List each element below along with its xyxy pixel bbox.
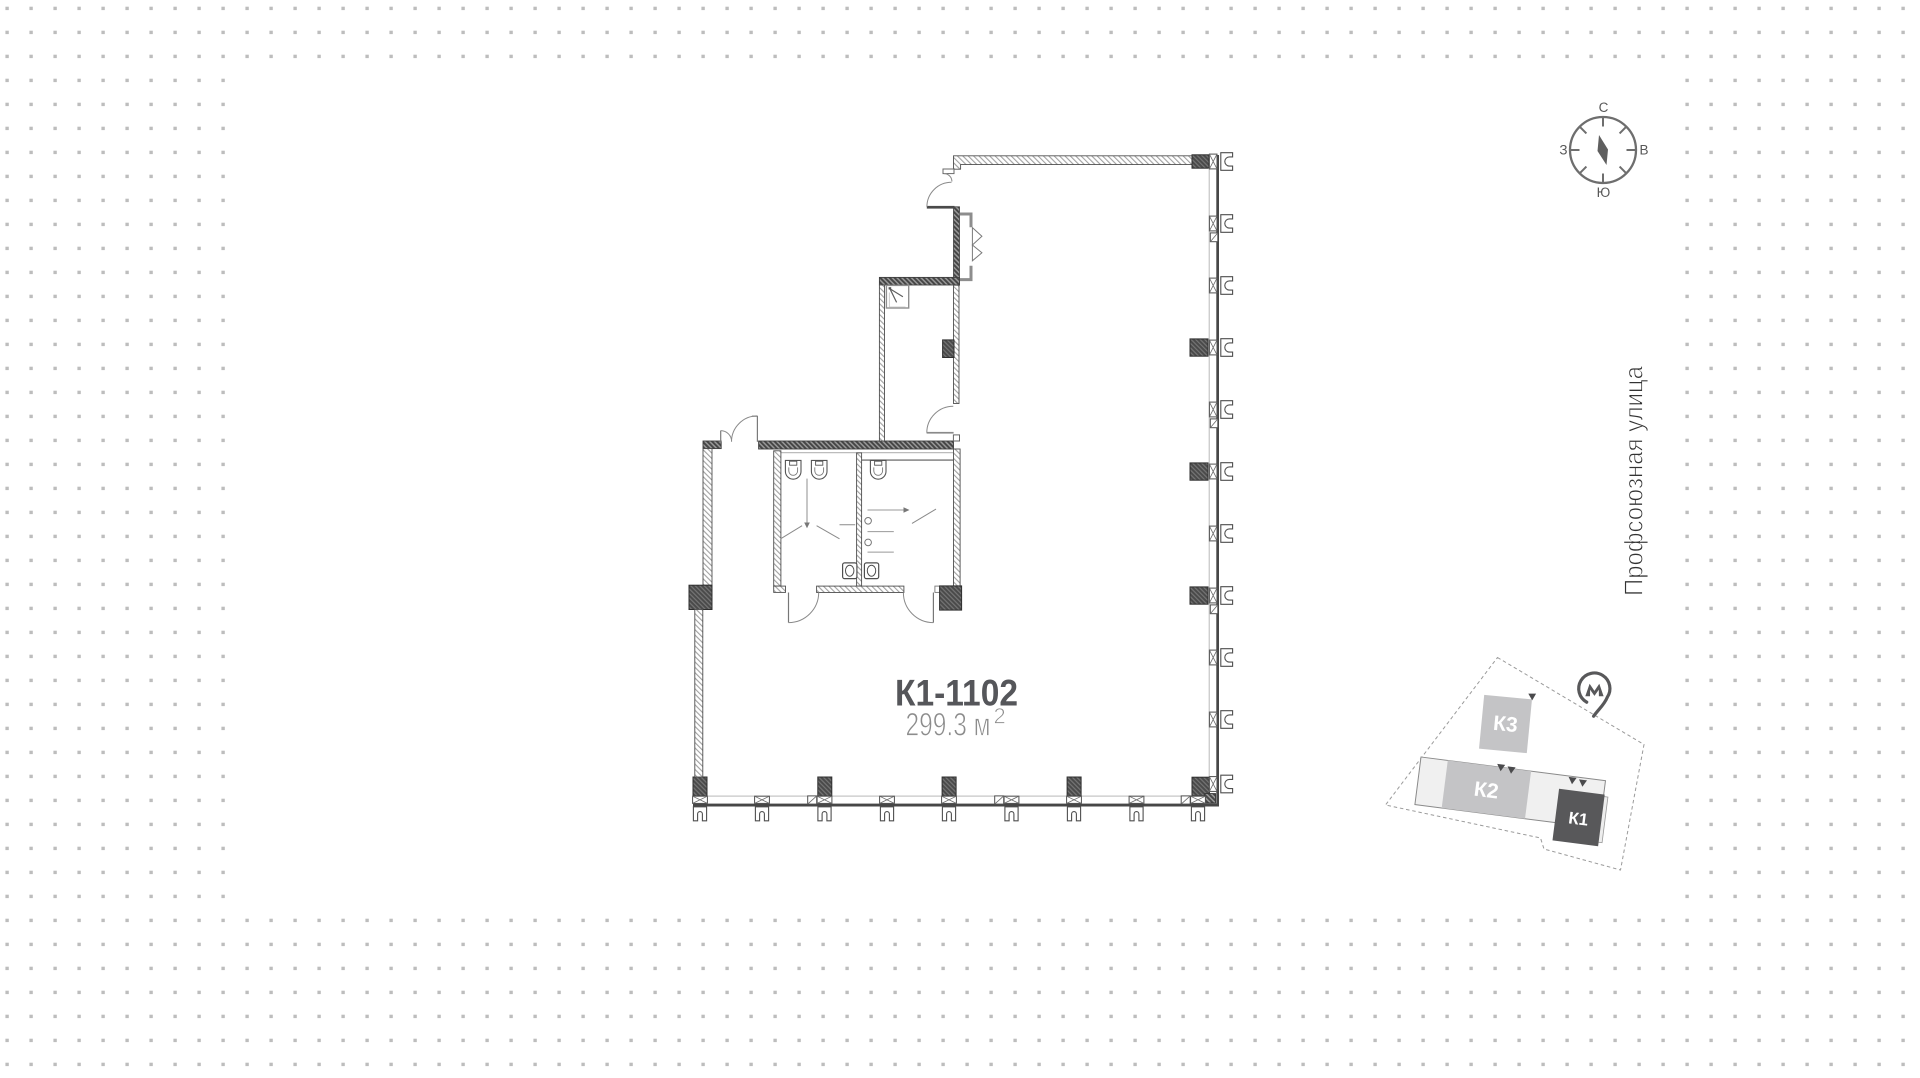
- svg-text:В: В: [1639, 143, 1648, 158]
- svg-text:Профсоюзная улица: Профсоюзная улица: [1619, 366, 1649, 596]
- svg-text:К2: К2: [1473, 778, 1500, 804]
- svg-text:К3: К3: [1492, 712, 1519, 737]
- svg-text:2: 2: [994, 704, 1006, 729]
- svg-text:К1: К1: [1567, 808, 1589, 829]
- svg-text:С: С: [1599, 100, 1609, 115]
- svg-text:299.3 м: 299.3 м: [906, 706, 991, 742]
- svg-text:З: З: [1559, 143, 1567, 158]
- svg-text:Ю: Ю: [1597, 185, 1611, 200]
